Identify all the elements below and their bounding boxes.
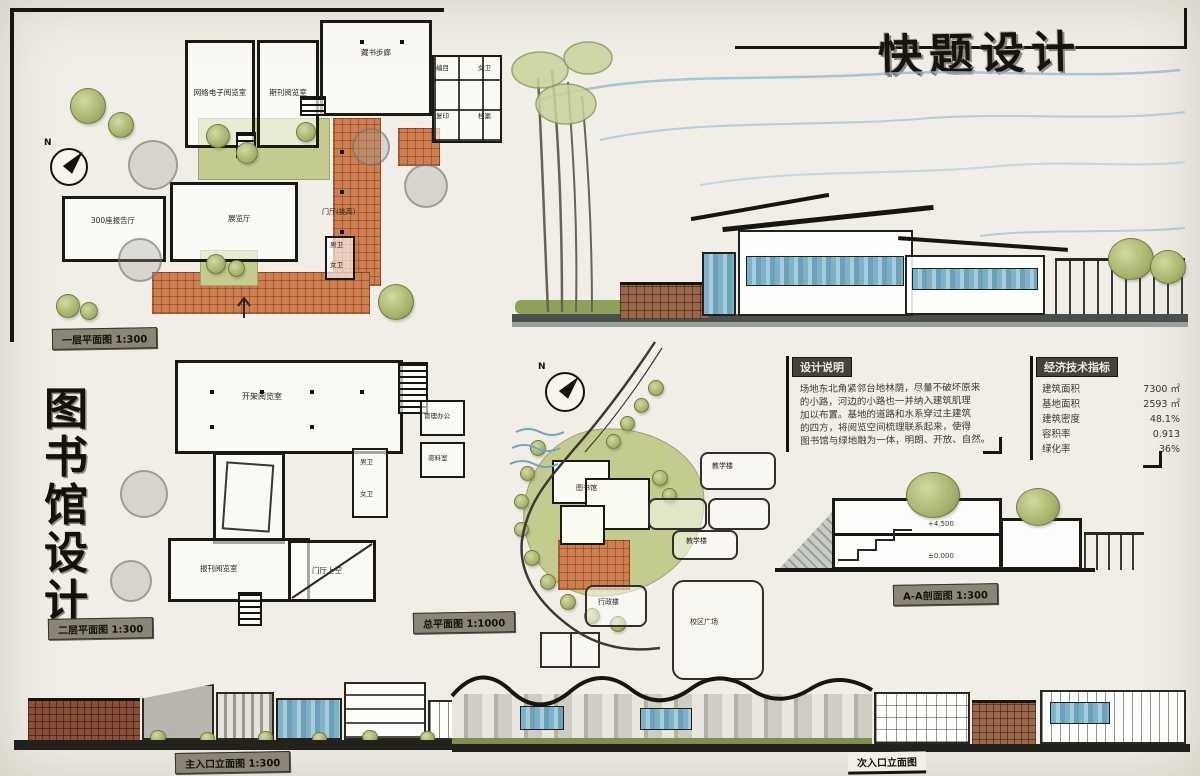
sketch-overlay — [0, 0, 1200, 776]
presentation-board: 快题设计 图 书 馆 设 计 网络电子阅览室 期刊阅览室 藏书步廊 编目 女卫 … — [0, 0, 1200, 776]
